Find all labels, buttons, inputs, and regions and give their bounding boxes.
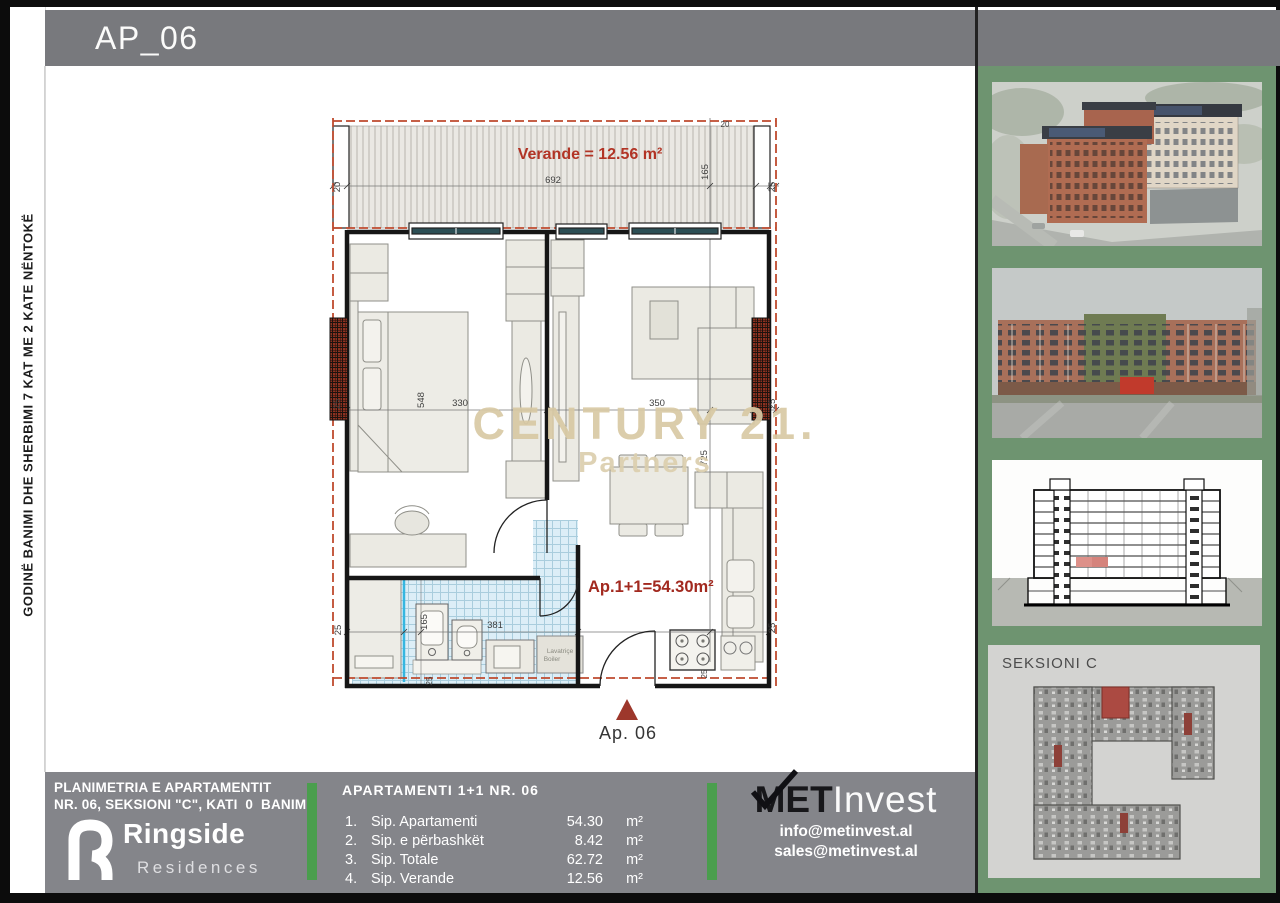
footer-plan-subtitle: NR. 06, SEKSIONI "C", KATI 0 BANIM	[54, 797, 306, 812]
dim-bottom-b: 25	[700, 669, 709, 678]
ringside-logo-icon	[68, 818, 114, 882]
area-table-title: APARTAMENTI 1+1 NR. 06	[342, 782, 539, 798]
apartment-area-label: Ap.1+1=54.30m²	[588, 578, 714, 597]
metinvest-logo-light: Invest	[833, 779, 938, 820]
metinvest-logo: METInvest	[755, 778, 938, 822]
row-num: 4.	[345, 871, 371, 887]
dim-living-width: 350	[649, 398, 665, 409]
row-label: Sip. Totale	[371, 852, 547, 868]
table-row: 3. Sip. Totale 62.72 m²	[345, 852, 643, 868]
building-description: GODINË BANIMI DHE SHERBIMI 7 KAT ME 2 KA…	[20, 213, 35, 616]
check-icon	[748, 768, 800, 814]
render-elevation	[992, 268, 1262, 438]
frame-bottom	[0, 893, 1280, 903]
row-num: 1.	[345, 814, 371, 830]
render-aerial	[992, 82, 1262, 246]
row-label: Sip. e përbashkët	[371, 833, 547, 849]
footer: PLANIMETRIA E APARTAMENTIT NR. 06, SEKSI…	[45, 772, 975, 893]
apartment-marker-label: Ap. 06	[588, 723, 668, 744]
building-description-sidebar: GODINË BANIMI DHE SHERBIMI 7 KAT ME 2 KA…	[10, 7, 46, 893]
footer-separator-bar	[307, 783, 317, 880]
floor-plan: 20 692 25 165 20 25 548 330 350 25 725 1…	[325, 110, 795, 710]
table-row: 1. Sip. Apartamenti 54.30 m²	[345, 814, 643, 830]
row-value: 54.30	[547, 814, 603, 830]
main-left-divider	[44, 66, 45, 772]
row-unit: m²	[603, 833, 643, 849]
c-plan-key	[1024, 683, 1224, 865]
row-unit: m²	[603, 871, 643, 887]
row-label: Sip. Verande	[371, 871, 547, 887]
dim-wall-right-lower: 25	[767, 623, 778, 634]
frame-left	[0, 0, 10, 903]
dim-wall-right: 25	[767, 399, 778, 410]
dim-bedroom-width: 330	[452, 398, 468, 409]
windows	[409, 223, 721, 239]
header-bar: AP_06	[45, 10, 1280, 66]
plan-sheet: GODINË BANIMI DHE SHERBIMI 7 KAT ME 2 KA…	[0, 0, 1280, 903]
dim-veranda-depth: 165	[700, 164, 711, 180]
dim-wall-left: 25	[332, 399, 343, 410]
row-unit: m²	[603, 814, 643, 830]
area-table: 1. Sip. Apartamenti 54.30 m² 2. Sip. e p…	[345, 814, 643, 890]
row-value: 8.42	[547, 833, 603, 849]
email-info[interactable]: info@metinvest.al	[717, 822, 975, 842]
washer-label-line2: Boiler	[544, 656, 561, 663]
footer-separator-bar	[707, 783, 717, 880]
row-num: 3.	[345, 852, 371, 868]
ringside-brand: Ringside	[123, 818, 245, 850]
row-value: 12.56	[547, 871, 603, 887]
row-num: 2.	[345, 833, 371, 849]
dim-bottom-a: 25	[425, 676, 434, 685]
washer-label-line1: Lavatriçe	[547, 648, 574, 655]
dim-living-depth: 725	[699, 450, 710, 466]
dim-bath-depth: 165	[419, 614, 430, 630]
dim-bath-width: 381	[487, 620, 503, 631]
row-unit: m²	[603, 852, 643, 868]
frame-right	[1276, 0, 1280, 903]
dim-veranda-right: 25	[767, 182, 778, 193]
page-title: AP_06	[95, 20, 199, 57]
render-section	[992, 460, 1262, 626]
dim-veranda-top: 20	[721, 120, 730, 129]
dim-veranda-width: 692	[545, 175, 561, 186]
row-label: Sip. Apartamenti	[371, 814, 547, 830]
seksioni-c-label: SEKSIONI C	[1002, 655, 1098, 672]
seksioni-c-panel: SEKSIONI C	[988, 645, 1260, 878]
table-row: 2. Sip. e përbashkët 8.42 m²	[345, 833, 643, 849]
dim-wall-left-lower: 25	[333, 625, 344, 636]
veranda-area-label: Verande = 12.56 m²	[495, 146, 685, 164]
right-sidebar: SEKSIONI C	[978, 66, 1276, 893]
metinvest-block: METInvest info@metinvest.al sales@metinv…	[717, 778, 975, 862]
frame-top	[0, 0, 1280, 7]
apartment-marker-icon	[616, 699, 638, 720]
email-sales[interactable]: sales@metinvest.al	[717, 842, 975, 862]
dim-veranda-left: 20	[332, 182, 343, 193]
row-value: 62.72	[547, 852, 603, 868]
footer-plan-title: PLANIMETRIA E APARTAMENTIT	[54, 780, 271, 795]
ringside-brand-sub: Residences	[137, 858, 261, 878]
dim-bed-length: 548	[416, 392, 427, 408]
table-row: 4. Sip. Verande 12.56 m²	[345, 871, 643, 887]
